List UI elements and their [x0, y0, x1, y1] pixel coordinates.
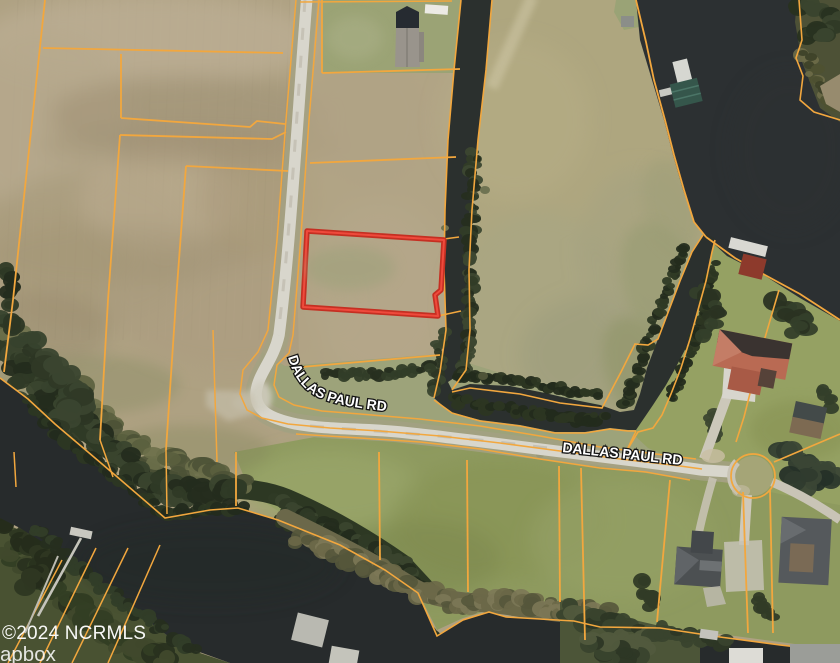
svg-text:apbox: apbox: [0, 643, 57, 663]
svg-text:©2024 NCRMLS: ©2024 NCRMLS: [2, 623, 146, 644]
